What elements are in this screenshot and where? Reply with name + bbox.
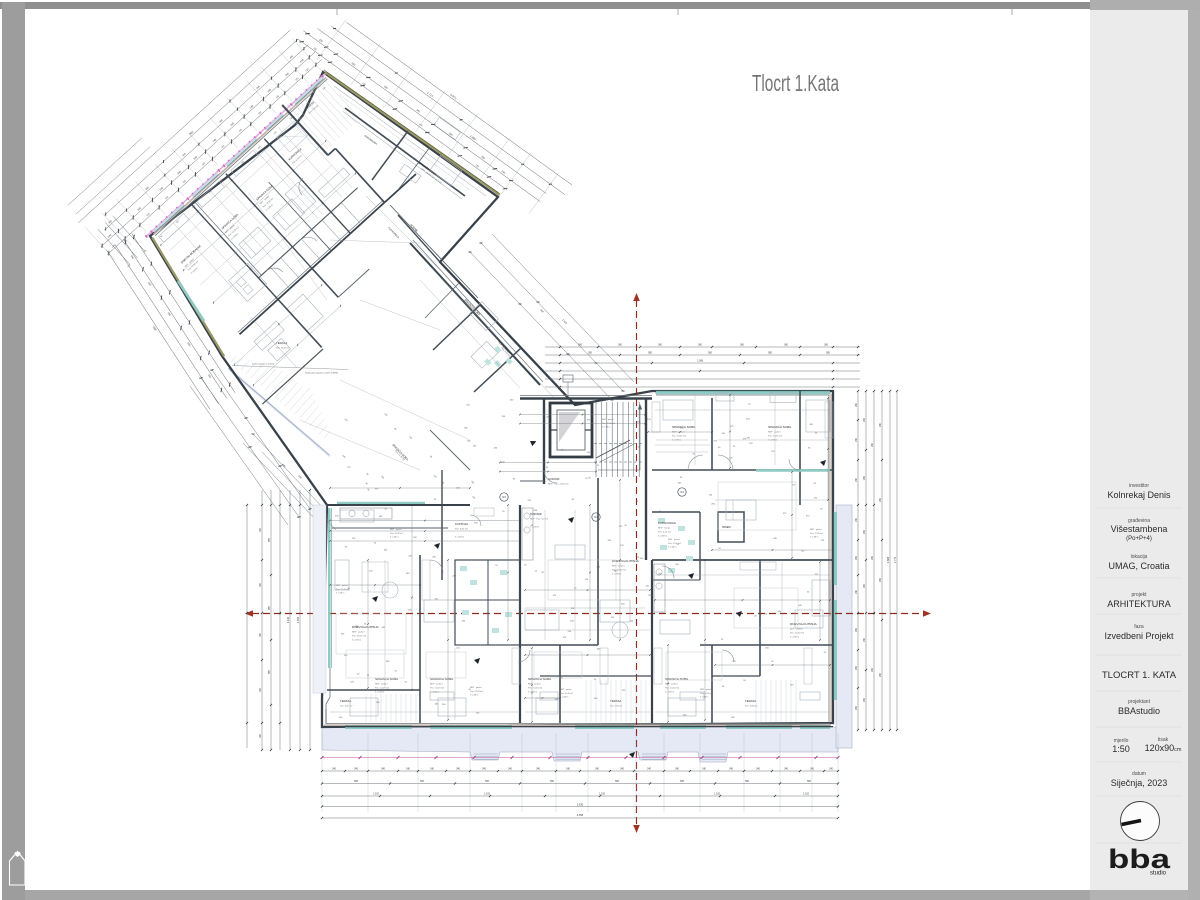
svg-text:h: 2,58 m: h: 2,58 m bbox=[668, 547, 677, 549]
svg-text:S4: S4 bbox=[680, 490, 684, 494]
svg-text:DNEVNI+KUHINJA: DNEVNI+KUHINJA bbox=[790, 622, 818, 626]
svg-text:faza: faza bbox=[1134, 624, 1144, 630]
svg-text:2.530: 2.530 bbox=[577, 802, 584, 806]
svg-text:projekt: projekt bbox=[1131, 592, 1147, 598]
svg-text:bba: bba bbox=[1108, 844, 1171, 874]
svg-text:1.770: 1.770 bbox=[894, 556, 897, 563]
svg-text:NKP · parket: NKP · parket bbox=[560, 688, 572, 691]
svg-text:h: 2,58 m: h: 2,58 m bbox=[390, 537, 399, 539]
svg-text:Pov: 12,45 m2: Pov: 12,45 m2 bbox=[668, 543, 682, 545]
svg-text:NKP · parket: NKP · parket bbox=[352, 631, 365, 634]
svg-text:1.015: 1.015 bbox=[803, 794, 809, 796]
svg-text:S3: S3 bbox=[594, 515, 598, 519]
svg-text:NKP · parket: NKP · parket bbox=[336, 584, 348, 587]
svg-text:Pov: 14,20 m2: Pov: 14,20 m2 bbox=[672, 436, 687, 438]
svg-text:Pov: 14,20 m2: Pov: 14,20 m2 bbox=[430, 688, 445, 690]
svg-text:TERASA: TERASA bbox=[610, 699, 621, 703]
svg-text:h: 2,58 m: h: 2,58 m bbox=[665, 692, 674, 694]
svg-text:Pov: 6,15 m2: Pov: 6,15 m2 bbox=[658, 532, 672, 534]
svg-text:Pov: 6,20 m2: Pov: 6,20 m2 bbox=[340, 706, 353, 708]
svg-text:lokacija: lokacija bbox=[1131, 554, 1148, 560]
svg-text:Pov: 14,20 m2: Pov: 14,20 m2 bbox=[665, 688, 680, 690]
svg-text:1.015: 1.015 bbox=[373, 794, 379, 796]
svg-text:KUPAONICA: KUPAONICA bbox=[658, 521, 677, 525]
svg-text:NKP · parket: NKP · parket bbox=[528, 683, 541, 686]
svg-text:NKP · parket: NKP · parket bbox=[612, 565, 625, 568]
svg-text:Pov: 14,20 m2: Pov: 14,20 m2 bbox=[375, 688, 390, 690]
svg-text:S3: S3 bbox=[502, 495, 506, 499]
svg-text:KUHINJA: KUHINJA bbox=[455, 522, 469, 526]
svg-text:BBAstudio: BBAstudio bbox=[1118, 706, 1160, 716]
svg-text:SPAVAĆA SOBA: SPAVAĆA SOBA bbox=[375, 676, 399, 681]
svg-text:Pov: 14,20 m2: Pov: 14,20 m2 bbox=[528, 688, 543, 690]
svg-text:1.015: 1.015 bbox=[599, 794, 605, 796]
svg-text:NKP · parket: NKP · parket bbox=[470, 686, 482, 689]
svg-text:Pov: 12,45 m2: Pov: 12,45 m2 bbox=[700, 693, 714, 695]
svg-text:Pov: 12,45 m2: Pov: 12,45 m2 bbox=[390, 533, 404, 535]
svg-text:NKP · parket: NKP · parket bbox=[430, 683, 443, 686]
svg-text:Pov: 30,75 m2: Pov: 30,75 m2 bbox=[352, 636, 367, 638]
svg-text:TERASA: TERASA bbox=[745, 699, 756, 703]
svg-text:1.140: 1.140 bbox=[287, 616, 290, 623]
svg-text:Pov: 12,45 m2: Pov: 12,45 m2 bbox=[810, 533, 824, 535]
svg-text:h: 2,58 m: h: 2,58 m bbox=[336, 593, 345, 595]
svg-text:Kolnrekaj Denis: Kolnrekaj Denis bbox=[1107, 490, 1171, 500]
svg-text:NKP · Pov: 24,20 m2: NKP · Pov: 24,20 m2 bbox=[548, 484, 569, 486]
svg-text:datum: datum bbox=[1132, 771, 1146, 777]
svg-text:NKP · parket: NKP · parket bbox=[375, 683, 388, 686]
svg-text:2.595: 2.595 bbox=[577, 813, 584, 817]
svg-text:h: 2,58 m: h: 2,58 m bbox=[430, 692, 439, 694]
svg-text:projektant: projektant bbox=[1128, 699, 1151, 705]
svg-text:h: 2,58 m: h: 2,58 m bbox=[790, 637, 799, 639]
svg-text:TERASA: TERASA bbox=[340, 699, 351, 703]
svg-text:UMAG, Croatia: UMAG, Croatia bbox=[1108, 561, 1169, 571]
svg-text:Pov: 12,45 m2: Pov: 12,45 m2 bbox=[470, 691, 484, 693]
svg-text:investitor: investitor bbox=[1129, 483, 1149, 489]
svg-text:Pov: 8,40 m2: Pov: 8,40 m2 bbox=[455, 529, 469, 531]
svg-text:Pov: 12,45 m2: Pov: 12,45 m2 bbox=[560, 693, 574, 695]
svg-text:(Po+P+4): (Po+P+4) bbox=[1126, 536, 1152, 542]
svg-text:Izvedbeni Projekt: Izvedbeni Projekt bbox=[1104, 631, 1174, 641]
svg-text:SPREM.: SPREM. bbox=[722, 526, 732, 529]
svg-text:Staklo-drvo ograda h=1,00m (v.: Staklo-drvo ograda h=1,00m (v.HRN) bbox=[305, 372, 338, 375]
svg-text:1.195: 1.195 bbox=[297, 616, 300, 623]
svg-text:h: 2,58 m: h: 2,58 m bbox=[352, 640, 361, 642]
svg-text:Drvena ograda (v.1,00m): Drvena ograda (v.1,00m) bbox=[252, 364, 274, 366]
svg-text:1.688: 1.688 bbox=[887, 556, 890, 563]
svg-text:studio: studio bbox=[1150, 871, 1167, 877]
svg-text:SPAVAĆA SOBA: SPAVAĆA SOBA bbox=[672, 424, 696, 429]
svg-text:h: 2,58 m: h: 2,58 m bbox=[700, 697, 709, 699]
svg-text:h: 2,58 m: h: 2,58 m bbox=[602, 427, 611, 429]
svg-text:Tlocrt 1.Kata: Tlocrt 1.Kata bbox=[752, 70, 839, 96]
svg-text:h: 2,58 m: h: 2,58 m bbox=[455, 537, 464, 539]
svg-text:SPAVAĆA SOBA: SPAVAĆA SOBA bbox=[430, 676, 454, 681]
svg-text:1.015: 1.015 bbox=[714, 794, 720, 796]
svg-text:NKP · parket: NKP · parket bbox=[768, 431, 781, 434]
svg-text:Pov: 32,40 m2: Pov: 32,40 m2 bbox=[790, 633, 805, 635]
svg-text:1:50: 1:50 bbox=[1112, 744, 1130, 754]
svg-text:HODNIK: HODNIK bbox=[548, 477, 560, 481]
svg-text:h: 2,58 m: h: 2,58 m bbox=[658, 536, 667, 538]
svg-text:1.015: 1.015 bbox=[484, 794, 490, 796]
svg-text:TLOCRT 1. KATA: TLOCRT 1. KATA bbox=[1102, 670, 1177, 681]
svg-text:Siječnja, 2023: Siječnja, 2023 bbox=[1111, 778, 1168, 788]
svg-text:h: 2,58 m: h: 2,58 m bbox=[470, 695, 479, 697]
svg-text:NKP · parket: NKP · parket bbox=[390, 528, 402, 531]
svg-text:ARHITEKTURA: ARHITEKTURA bbox=[1107, 599, 1171, 609]
svg-text:NKP · parket: NKP · parket bbox=[668, 538, 680, 541]
svg-text:NKP · parket: NKP · parket bbox=[700, 688, 712, 691]
svg-text:NKP · Pov: 9,2 m2: NKP · Pov: 9,2 m2 bbox=[530, 519, 549, 521]
svg-text:NKP · ker.pl.: NKP · ker.pl. bbox=[658, 527, 671, 530]
svg-text:1.065: 1.065 bbox=[697, 360, 704, 363]
svg-text:SPAVAĆA SOBA: SPAVAĆA SOBA bbox=[528, 676, 552, 681]
svg-text:h: 2,58 m: h: 2,58 m bbox=[560, 697, 569, 699]
svg-text:NKP · parket: NKP · parket bbox=[665, 683, 678, 686]
svg-text:KODNIK: KODNIK bbox=[530, 512, 543, 516]
svg-text:NKP · parket: NKP · parket bbox=[602, 418, 614, 421]
svg-text:Pov: 22,10 m2: Pov: 22,10 m2 bbox=[276, 348, 290, 350]
svg-text:h: 2,58 m: h: 2,58 m bbox=[375, 692, 384, 694]
svg-text:NKP · parket: NKP · parket bbox=[810, 528, 822, 531]
svg-text:Pov: 14,20 m2: Pov: 14,20 m2 bbox=[768, 436, 783, 438]
svg-text:Višestambena: Višestambena bbox=[1111, 524, 1168, 534]
svg-text:h: 2,58 m: h: 2,58 m bbox=[810, 537, 819, 539]
svg-text:Pov: 12,45 m2: Pov: 12,45 m2 bbox=[602, 423, 616, 425]
svg-text:SPAVAĆA SOBA: SPAVAĆA SOBA bbox=[768, 424, 792, 429]
